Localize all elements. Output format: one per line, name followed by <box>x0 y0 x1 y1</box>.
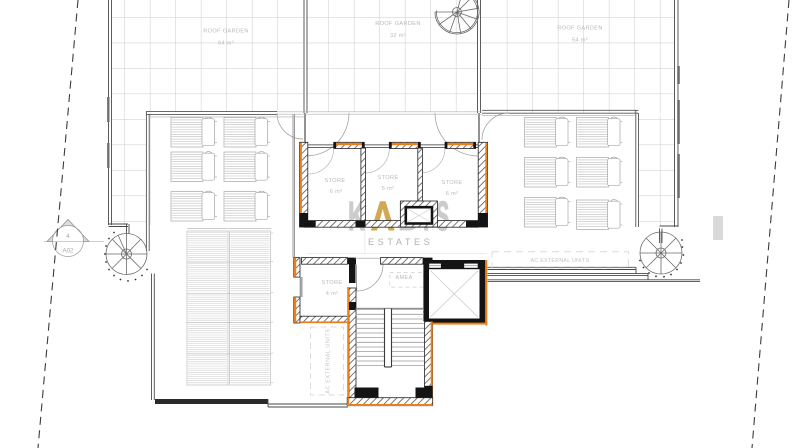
svg-text:ESTATES: ESTATES <box>368 237 433 247</box>
svg-text:64 m²: 64 m² <box>218 41 234 47</box>
svg-text:4 m²: 4 m² <box>326 291 339 297</box>
svg-text:AC EXTERNAL UNITS: AC EXTERNAL UNITS <box>531 258 590 264</box>
svg-text:54 m²: 54 m² <box>572 38 588 44</box>
svg-text:6 m²: 6 m² <box>446 191 459 197</box>
svg-text:STORE: STORE <box>442 180 463 186</box>
svg-text:5 m²: 5 m² <box>382 186 395 192</box>
svg-text:4: 4 <box>66 233 70 240</box>
svg-text:Λ: Λ <box>371 194 394 239</box>
svg-text:A02: A02 <box>62 248 74 255</box>
svg-text:32 m²: 32 m² <box>390 33 406 39</box>
svg-text:ROOF GARDEN: ROOF GARDEN <box>557 26 603 32</box>
svg-text:AC EXTERNAL UNITS: AC EXTERNAL UNITS <box>326 328 332 393</box>
svg-text:ROOF GARDEN: ROOF GARDEN <box>203 29 249 35</box>
svg-text:STORE: STORE <box>378 175 399 181</box>
svg-text:ROOF GARDEN: ROOF GARDEN <box>375 21 421 27</box>
svg-text:6 m²: 6 m² <box>330 189 343 195</box>
svg-text:STORE: STORE <box>322 280 343 286</box>
svg-text:S: S <box>436 193 449 239</box>
svg-text:STORE: STORE <box>325 178 346 184</box>
svg-text:AMEA: AMEA <box>395 275 412 281</box>
